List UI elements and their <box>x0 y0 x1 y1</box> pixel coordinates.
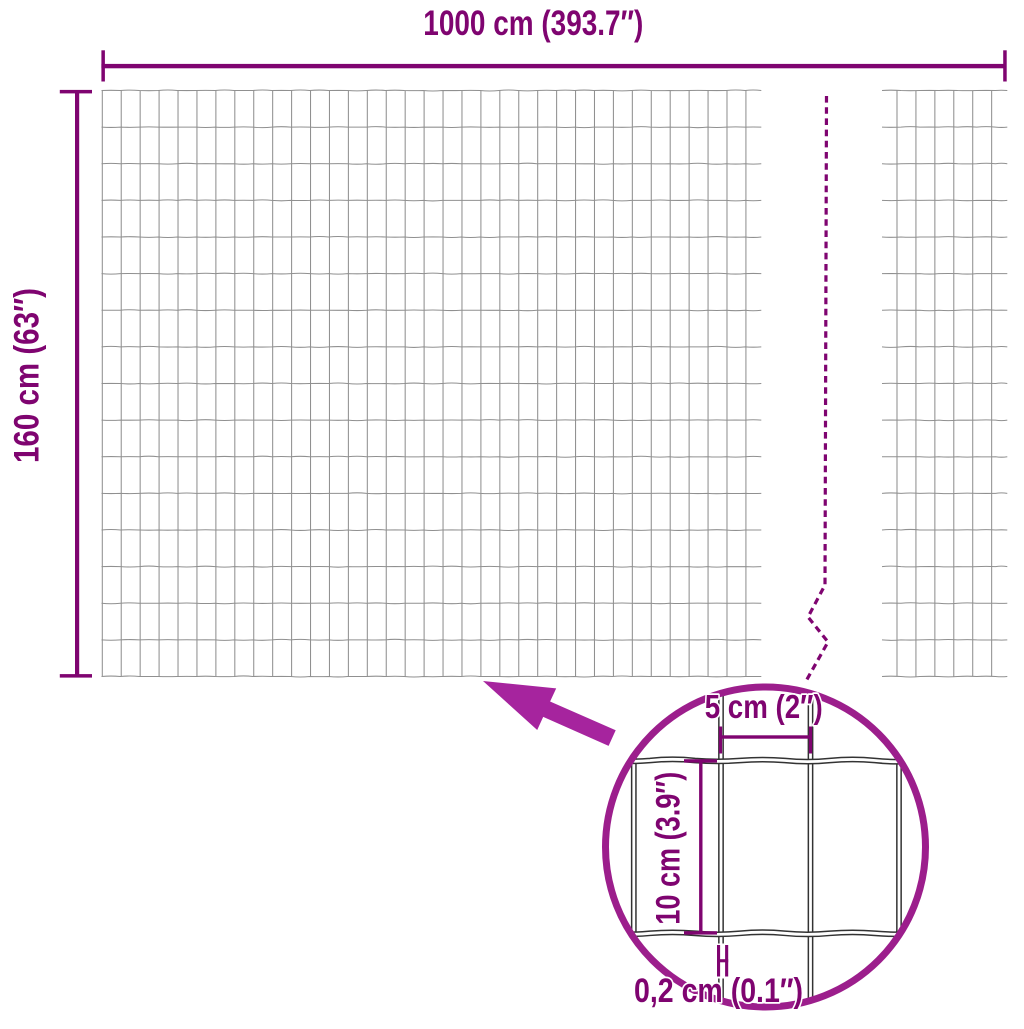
svg-text:160 cm (63″): 160 cm (63″) <box>8 288 47 463</box>
svg-text:5 cm (2″): 5 cm (2″) <box>705 688 823 725</box>
svg-text:10 cm (3.9″): 10 cm (3.9″) <box>650 772 688 925</box>
svg-text:1000 cm (393.7″): 1000 cm (393.7″) <box>423 4 643 43</box>
svg-text:0,2 cm (0.1″): 0,2 cm (0.1″) <box>634 972 803 1010</box>
